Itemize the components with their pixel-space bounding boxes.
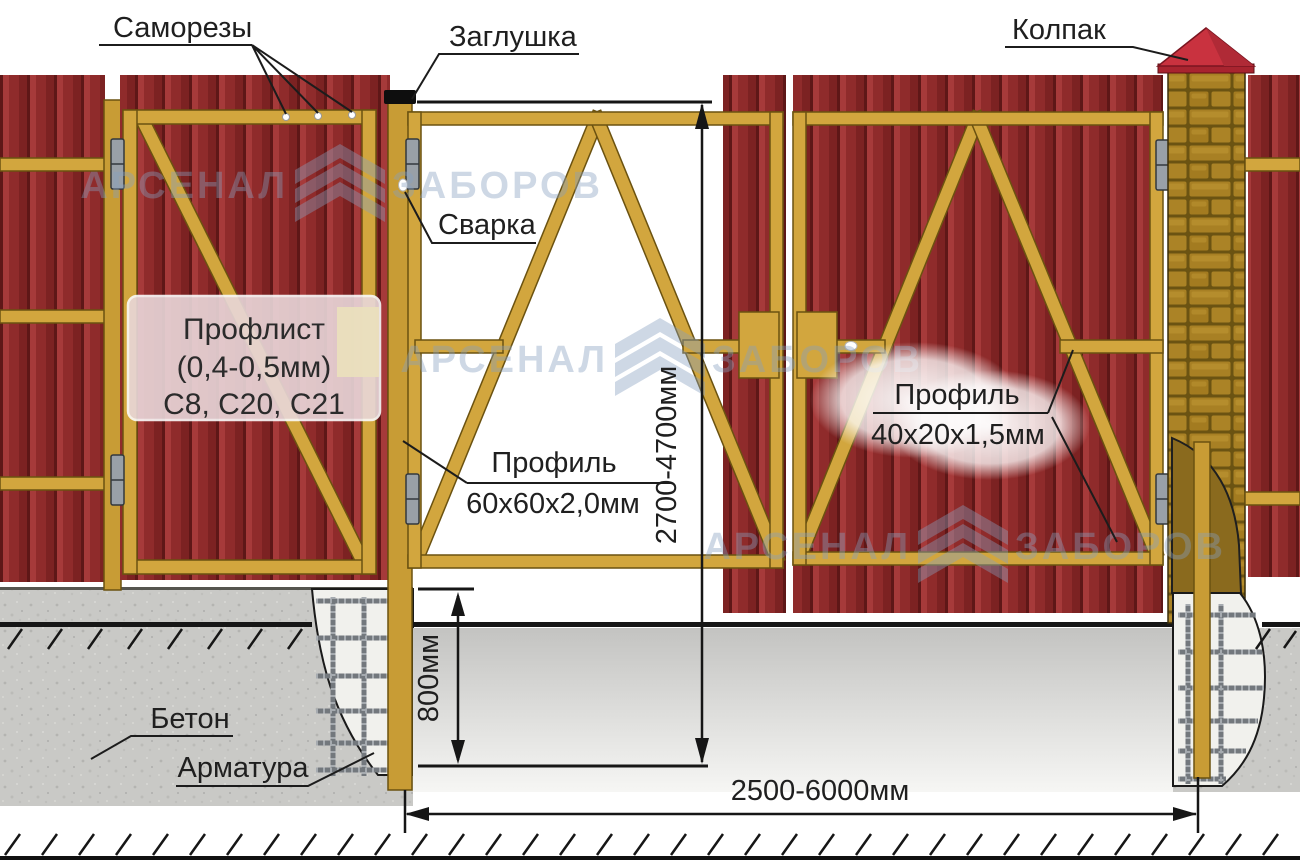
samorezy-text: Саморезы <box>113 12 252 44</box>
leader-line <box>412 54 579 99</box>
frame-bottom-rail <box>123 560 376 574</box>
gate-mid-rail-right <box>1060 340 1163 353</box>
ground-line-middle <box>413 622 1173 627</box>
rail-top <box>1245 158 1300 171</box>
profil60-line2: 60х60х2,0мм <box>466 488 640 520</box>
fence-gate-diagram: АРСЕНАЛ ЗАБОРОВ АРСЕНАЛ ЗАБОРОВ АРСЕНАЛ … <box>0 0 1300 860</box>
hinge-icon <box>406 474 419 524</box>
gate-top-rail <box>793 112 1163 125</box>
rail-middle <box>0 310 107 323</box>
profil60-line1: Профиль <box>491 447 616 479</box>
watermark-word1: АРСЕНАЛ <box>80 165 288 207</box>
ground-line-left <box>0 622 312 627</box>
hinge-icon <box>111 455 124 505</box>
rail-bottom <box>0 477 107 490</box>
post-end-cap <box>384 90 416 104</box>
ground-baseline <box>0 856 1300 860</box>
diagram-svg: АРСЕНАЛ ЗАБОРОВ АРСЕНАЛ ЗАБОРОВ АРСЕНАЛ … <box>0 0 1300 860</box>
depth-dimension-text: 800мм <box>413 634 445 722</box>
svarka-text: Сварка <box>438 209 537 241</box>
gate-post-right <box>1194 442 1210 778</box>
kolpak-text: Колпак <box>1012 14 1106 46</box>
label-proflist: Профлист (0,4-0,5мм) С8, С20, С21 <box>128 296 380 421</box>
label-kolpak: Колпак <box>1005 14 1188 60</box>
watermark-word1: АРСЕНАЛ <box>400 339 608 381</box>
proflist-line2: (0,4-0,5мм) <box>177 351 332 384</box>
label-zaglushka: Заглушка <box>412 21 579 99</box>
zaglushka-text: Заглушка <box>449 21 578 53</box>
leader-line <box>1005 47 1188 60</box>
frame-top-rail <box>123 110 376 124</box>
profil40-line1: Профиль <box>894 379 1019 411</box>
proflist-line3: С8, С20, С21 <box>163 388 345 421</box>
watermark-word1: АРСЕНАЛ <box>703 526 911 568</box>
gate-top-rail <box>408 112 783 125</box>
width-dimension-text: 2500-6000мм <box>731 775 910 807</box>
watermark-word2: ЗАБОРОВ <box>1015 526 1226 568</box>
height-dimension-text: 2700-4700мм <box>651 366 683 545</box>
fence-section-far-right <box>1245 75 1300 577</box>
hinge-icon <box>1156 140 1169 190</box>
proflist-swatch <box>337 307 379 377</box>
screw-icon <box>315 113 322 120</box>
screw-icon <box>349 112 356 119</box>
rail-bottom <box>1245 492 1300 505</box>
ground-hatch-strip <box>0 834 1300 860</box>
screw-icon <box>283 114 290 121</box>
proflist-line1: Профлист <box>183 313 325 346</box>
armatura-text: Арматура <box>178 752 310 784</box>
profsheet-far-left <box>0 75 105 582</box>
ground-line-right <box>1262 622 1300 627</box>
beton-text: Бетон <box>150 703 229 735</box>
fence-section-far-left <box>0 75 107 582</box>
watermark-word2: ЗАБОРОВ <box>392 165 603 207</box>
profil40-line2: 40х20х1,5мм <box>871 419 1045 451</box>
hinge-icon <box>1156 474 1169 524</box>
